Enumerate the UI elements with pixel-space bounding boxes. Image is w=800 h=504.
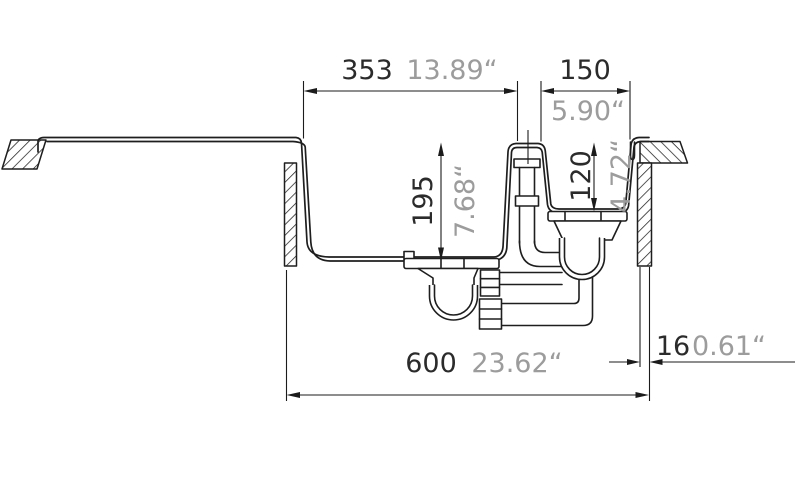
dim-600-inch: 23.62“ xyxy=(471,348,562,379)
overflow-union-collar xyxy=(516,196,539,206)
dim-353-mm: 353 xyxy=(341,55,393,86)
lower-outlet-pipe xyxy=(502,274,593,326)
sink-profile xyxy=(38,138,649,262)
dimension-main-bowl-width: 353 13.89“ xyxy=(304,55,518,141)
countertop-left-block xyxy=(2,140,46,169)
main-drain-assembly xyxy=(404,252,502,330)
dimension-edge-thickness: 16 0.61“ xyxy=(609,267,795,367)
dim-16-mm: 16 xyxy=(656,331,690,362)
dim-195-inch: 7.68“ xyxy=(450,164,481,238)
sink-section-drawing: 353 13.89“ 150 5.90“ 195 7.68“ 120 4 xyxy=(0,0,800,504)
dimension-half-bowl-width: 150 5.90“ xyxy=(541,55,630,142)
dimension-main-bowl-depth: 195 7.68“ xyxy=(408,143,481,262)
dim-16-inch: 0.61“ xyxy=(692,331,766,362)
dim-150-inch: 5.90“ xyxy=(551,96,625,127)
dimension-half-bowl-depth: 120 4.72“ xyxy=(566,139,637,213)
sink-surface-line xyxy=(38,138,649,258)
dimensions: 353 13.89“ 150 5.90“ 195 7.68“ 120 4 xyxy=(287,55,796,401)
dim-150-mm: 150 xyxy=(559,55,611,86)
countertop-right-block xyxy=(640,142,688,164)
cabinet-panel-right xyxy=(638,163,652,266)
technical-drawing-canvas: 353 13.89“ 150 5.90“ 195 7.68“ 120 4 xyxy=(0,0,800,504)
dim-120-inch: 4.72“ xyxy=(606,139,637,213)
upper-connecting-pipe xyxy=(500,273,563,285)
half-strainer-body xyxy=(554,221,621,240)
pipe-coupling-upper xyxy=(481,270,500,296)
main-drain-flange xyxy=(404,259,499,269)
pipe-coupling-lower xyxy=(480,299,502,329)
half-trap-cup-outer xyxy=(560,238,605,280)
dim-195-mm: 195 xyxy=(408,175,439,227)
dim-600-mm: 600 xyxy=(405,348,457,379)
cabinet-panel-left xyxy=(285,163,297,266)
half-bowl-drain-assembly xyxy=(548,212,627,280)
dim-353-inch: 13.89“ xyxy=(406,55,497,86)
overflow-coupling-top xyxy=(514,159,540,168)
dim-120-mm: 120 xyxy=(566,150,597,202)
